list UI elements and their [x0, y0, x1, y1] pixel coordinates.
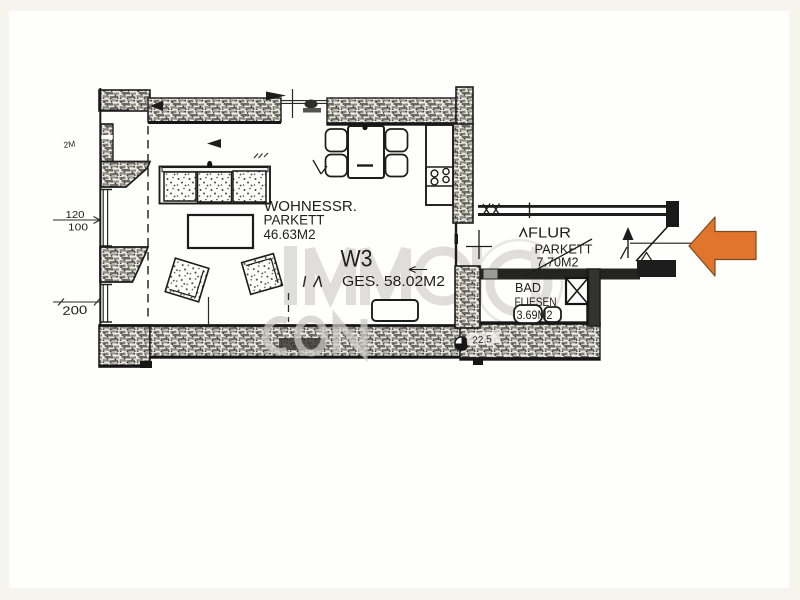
svg-text:W3: W3	[341, 246, 373, 273]
svg-text:7.70M2: 7.70M2	[537, 255, 579, 270]
svg-text:3.69M2: 3.69M2	[517, 308, 553, 322]
svg-text:46.63M2: 46.63M2	[264, 226, 316, 242]
svg-text:2M: 2M	[63, 138, 76, 150]
svg-text:FLUR: FLUR	[528, 226, 571, 242]
svg-text:22.5: 22.5	[472, 334, 493, 346]
svg-text:120: 120	[66, 209, 85, 221]
svg-text:100: 100	[68, 222, 88, 234]
svg-text:200: 200	[62, 303, 88, 318]
svg-text:GES. 58.02M2: GES. 58.02M2	[342, 273, 445, 290]
svg-text:BAD: BAD	[515, 281, 541, 295]
